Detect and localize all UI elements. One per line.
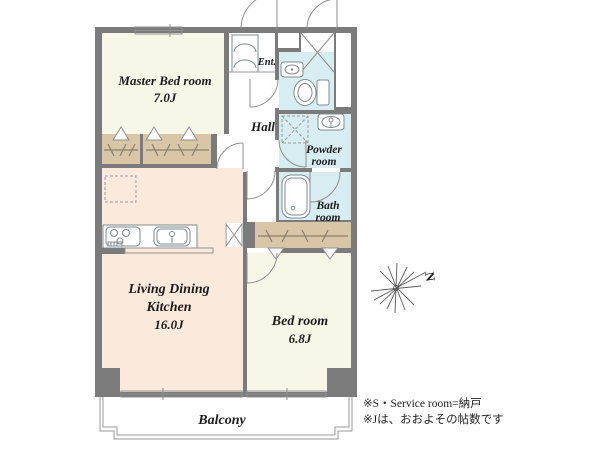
pillar-left xyxy=(95,368,120,397)
floor-plan-canvas: N Master Bed room 7.0J Ent. Hall Powder … xyxy=(0,0,600,450)
entrance-label: Ent. xyxy=(257,57,276,68)
powder-room-label-1: Powder xyxy=(306,144,342,156)
powder-doorway xyxy=(275,140,279,167)
footnote-jo-count: ※Jは、おおよその帖数です xyxy=(363,412,504,426)
powder-room-label-2: room xyxy=(312,156,337,168)
floor-plan: N Master Bed room 7.0J Ent. Hall Powder … xyxy=(0,0,600,450)
bathroom-label-1: Bath xyxy=(315,200,339,212)
north-label: N xyxy=(422,271,439,283)
bedroom-size: 6.8J xyxy=(289,331,312,346)
footnotes: ※S・Service room=納戸 ※Jは、おおよその帖数です xyxy=(363,397,504,426)
footnote-service-room: ※S・Service room=納戸 xyxy=(363,397,482,410)
master-bedroom-size: 7.0J xyxy=(154,90,177,105)
bedroom-label: Bed room xyxy=(271,314,329,329)
bath-doorway xyxy=(312,168,340,172)
pillar-right xyxy=(327,368,357,397)
inner-passage xyxy=(247,172,276,222)
ldk-label-2: Kitchen xyxy=(145,300,191,315)
shoe-cabinet-icon xyxy=(232,35,258,72)
ldk-label-1: Living Dining xyxy=(127,282,209,297)
toilet-doorway xyxy=(275,80,279,108)
bathroom-label-2: room xyxy=(316,212,341,224)
balcony-label: Balcony xyxy=(197,413,246,428)
entry-alcove xyxy=(278,33,299,48)
compass-icon: N xyxy=(371,263,439,313)
toilet-icon xyxy=(317,80,329,105)
pipe-space xyxy=(336,33,351,107)
storage-door-arc xyxy=(307,0,337,29)
bath-fixtures xyxy=(282,175,310,218)
hall-label: Hall xyxy=(250,119,275,134)
bedroom-closet xyxy=(255,222,351,248)
ldk-floor xyxy=(102,168,243,392)
ldk-size: 16.0J xyxy=(154,317,184,332)
master-bedroom-label: Master Bed room xyxy=(117,73,211,88)
kitchen-half-wall xyxy=(97,248,125,254)
entrance-door-arc xyxy=(241,0,277,29)
